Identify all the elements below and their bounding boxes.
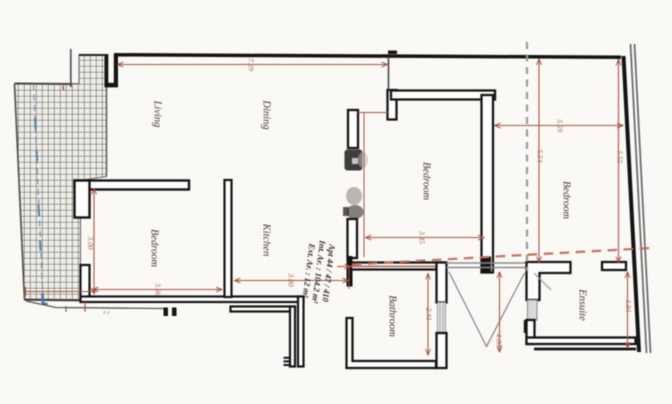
- svg-text:2.41: 2.41: [424, 307, 433, 320]
- svg-text:Kitchen: Kitchen: [261, 223, 272, 257]
- svg-text:3.00: 3.00: [286, 272, 295, 286]
- svg-text:5.54: 5.54: [535, 149, 544, 162]
- svg-text:Bedroom: Bedroom: [421, 162, 432, 201]
- svg-text:Bedroom: Bedroom: [149, 229, 160, 268]
- svg-text:4.00: 4.00: [494, 333, 503, 346]
- svg-text:3.00: 3.00: [86, 235, 95, 249]
- svg-text:Bedroom: Bedroom: [561, 181, 572, 220]
- svg-text:3.59: 3.59: [555, 118, 564, 132]
- svg-text:Living: Living: [152, 100, 163, 128]
- svg-text:x x: x x: [102, 310, 110, 316]
- svg-text:Dining: Dining: [261, 99, 272, 129]
- svg-text:5.55: 5.55: [615, 150, 624, 163]
- svg-text:3.45: 3.45: [417, 230, 426, 244]
- svg-text:Ensuite: Ensuite: [577, 288, 588, 321]
- svg-text:Bathroom: Bathroom: [387, 295, 398, 337]
- svg-text:3.36: 3.36: [153, 282, 162, 296]
- svg-text:7.29: 7.29: [246, 58, 255, 71]
- svg-text:1.91: 1.91: [624, 299, 633, 312]
